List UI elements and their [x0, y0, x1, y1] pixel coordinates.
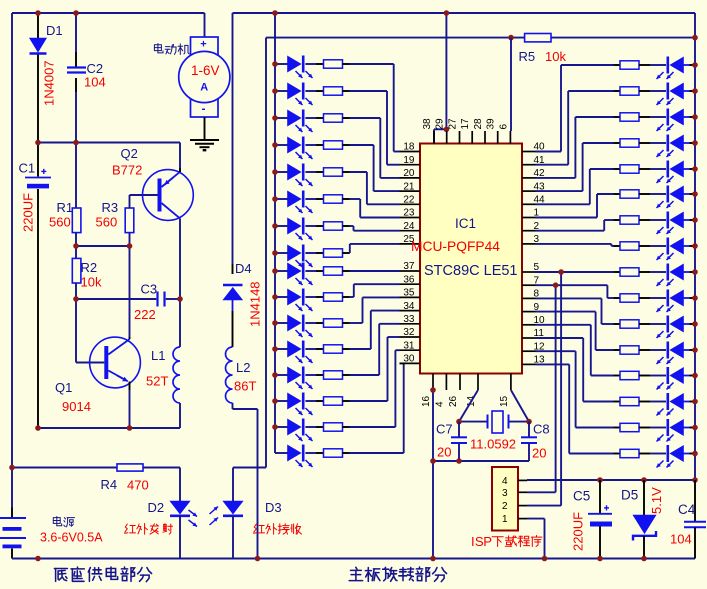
svg-text:8: 8 [534, 289, 540, 300]
svg-text:38: 38 [422, 118, 433, 130]
svg-text:44: 44 [534, 195, 546, 206]
svg-text:10k: 10k [81, 275, 102, 290]
svg-text:220UF: 220UF [571, 512, 586, 551]
svg-text:20: 20 [403, 168, 415, 179]
svg-text:D1: D1 [46, 23, 63, 38]
svg-text:24: 24 [403, 221, 415, 232]
svg-text:20: 20 [532, 446, 546, 461]
svg-text:R3: R3 [102, 200, 119, 215]
svg-text:560: 560 [96, 215, 118, 230]
svg-text:4: 4 [434, 401, 445, 407]
svg-text:41: 41 [534, 155, 546, 166]
svg-text:20: 20 [437, 445, 451, 460]
svg-text:C5: C5 [573, 489, 590, 504]
svg-text:12: 12 [534, 341, 546, 352]
svg-text:9014: 9014 [62, 399, 91, 414]
svg-text:3.6-6V0.5A: 3.6-6V0.5A [40, 531, 103, 545]
svg-text:52T: 52T [146, 374, 168, 389]
svg-text:40: 40 [534, 142, 546, 153]
svg-text:39: 39 [486, 118, 497, 130]
svg-text:-: - [202, 102, 206, 116]
svg-text:1: 1 [502, 514, 508, 525]
svg-text:27: 27 [448, 118, 459, 130]
svg-text:36: 36 [403, 274, 415, 285]
svg-text:1N4148: 1N4148 [248, 281, 263, 327]
svg-text:2: 2 [534, 221, 540, 232]
svg-text:22: 22 [403, 195, 415, 206]
svg-text:21: 21 [403, 181, 415, 192]
svg-text:560: 560 [49, 215, 71, 230]
svg-text:L1: L1 [151, 348, 165, 363]
svg-text:11.0592: 11.0592 [470, 437, 516, 452]
svg-text:32: 32 [403, 327, 415, 338]
svg-text:43: 43 [534, 181, 546, 192]
svg-text:18: 18 [403, 142, 415, 153]
svg-text:STC89C LE51: STC89C LE51 [424, 263, 518, 279]
svg-text:37: 37 [403, 261, 415, 272]
svg-text:L2: L2 [236, 360, 250, 375]
svg-text:23: 23 [403, 208, 415, 219]
svg-text:9: 9 [534, 302, 540, 313]
svg-text:+: + [200, 39, 206, 51]
svg-text:1: 1 [534, 208, 540, 219]
svg-text:D3: D3 [265, 500, 282, 515]
svg-text:R5: R5 [519, 49, 536, 64]
svg-text:D5: D5 [621, 488, 638, 503]
svg-text:2: 2 [502, 501, 508, 512]
svg-text:28: 28 [473, 118, 484, 130]
svg-text:C8: C8 [533, 422, 550, 437]
svg-text:13: 13 [534, 355, 546, 366]
svg-text:5.1V: 5.1V [649, 487, 664, 514]
svg-text:30: 30 [403, 354, 415, 365]
svg-text:104: 104 [670, 532, 692, 547]
svg-text:10k: 10k [545, 49, 566, 64]
svg-text:C1: C1 [19, 161, 36, 176]
svg-text:MCU-PQFP44: MCU-PQFP44 [411, 239, 500, 254]
svg-text:IC1: IC1 [455, 216, 476, 231]
svg-text:1-6V: 1-6V [191, 63, 220, 78]
svg-text:470: 470 [127, 478, 149, 493]
svg-text:17: 17 [460, 118, 471, 130]
svg-text:R1: R1 [57, 200, 74, 215]
svg-text:1N4007: 1N4007 [42, 60, 57, 106]
svg-text:33: 33 [403, 314, 415, 325]
svg-text:19: 19 [403, 155, 415, 166]
svg-text:35: 35 [403, 288, 415, 299]
svg-text:5: 5 [534, 262, 540, 273]
svg-text:R4: R4 [101, 477, 118, 492]
svg-text:25: 25 [403, 234, 415, 245]
svg-text:10: 10 [534, 315, 546, 326]
svg-text:34: 34 [403, 301, 415, 312]
svg-text:7: 7 [534, 275, 540, 286]
svg-text:4: 4 [502, 476, 508, 487]
svg-text:16: 16 [421, 395, 432, 407]
svg-text:C3: C3 [141, 282, 158, 297]
svg-text:3: 3 [502, 488, 508, 499]
svg-text:11: 11 [534, 328, 545, 339]
svg-text:3: 3 [534, 234, 540, 245]
svg-text:31: 31 [403, 340, 415, 351]
svg-text:220UF: 220UF [21, 193, 36, 232]
svg-text:R2: R2 [81, 260, 98, 275]
svg-text:86T: 86T [234, 379, 256, 394]
svg-text:222: 222 [134, 307, 156, 322]
svg-text:Q2: Q2 [121, 146, 138, 161]
svg-text:A: A [200, 82, 208, 94]
svg-text:42: 42 [534, 168, 546, 179]
svg-text:104: 104 [84, 75, 106, 90]
svg-text:C4: C4 [678, 502, 696, 517]
svg-text:P: P [483, 534, 492, 549]
svg-text:Q1: Q1 [55, 380, 72, 395]
svg-text:D2: D2 [148, 500, 165, 515]
svg-text:26: 26 [448, 395, 459, 407]
svg-text:15: 15 [499, 395, 510, 407]
svg-text:D4: D4 [235, 261, 252, 276]
svg-text:6: 6 [498, 123, 509, 129]
svg-text:B772: B772 [112, 163, 142, 178]
svg-text:29: 29 [435, 118, 446, 130]
svg-text:C7: C7 [436, 422, 453, 437]
